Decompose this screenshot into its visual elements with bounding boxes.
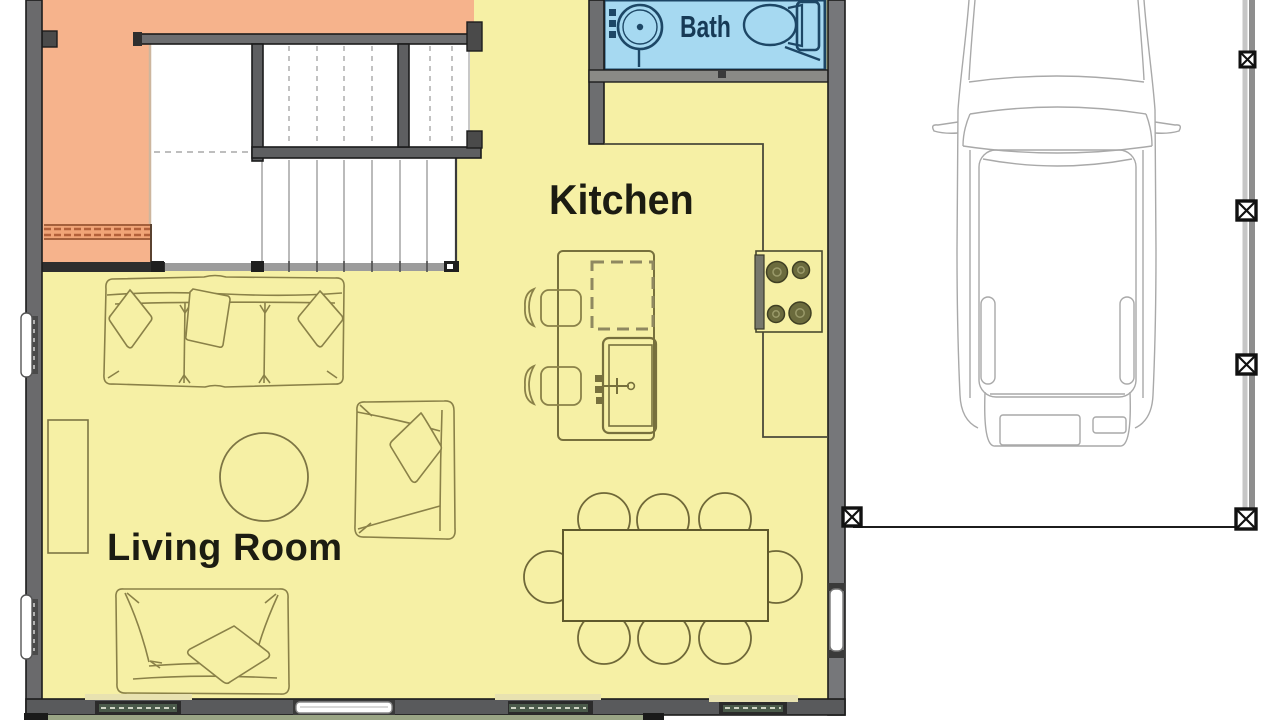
svg-text:Kitchen: Kitchen bbox=[549, 176, 694, 223]
svg-text:Living Room: Living Room bbox=[107, 527, 343, 569]
svg-text:Bath: Bath bbox=[680, 9, 731, 44]
